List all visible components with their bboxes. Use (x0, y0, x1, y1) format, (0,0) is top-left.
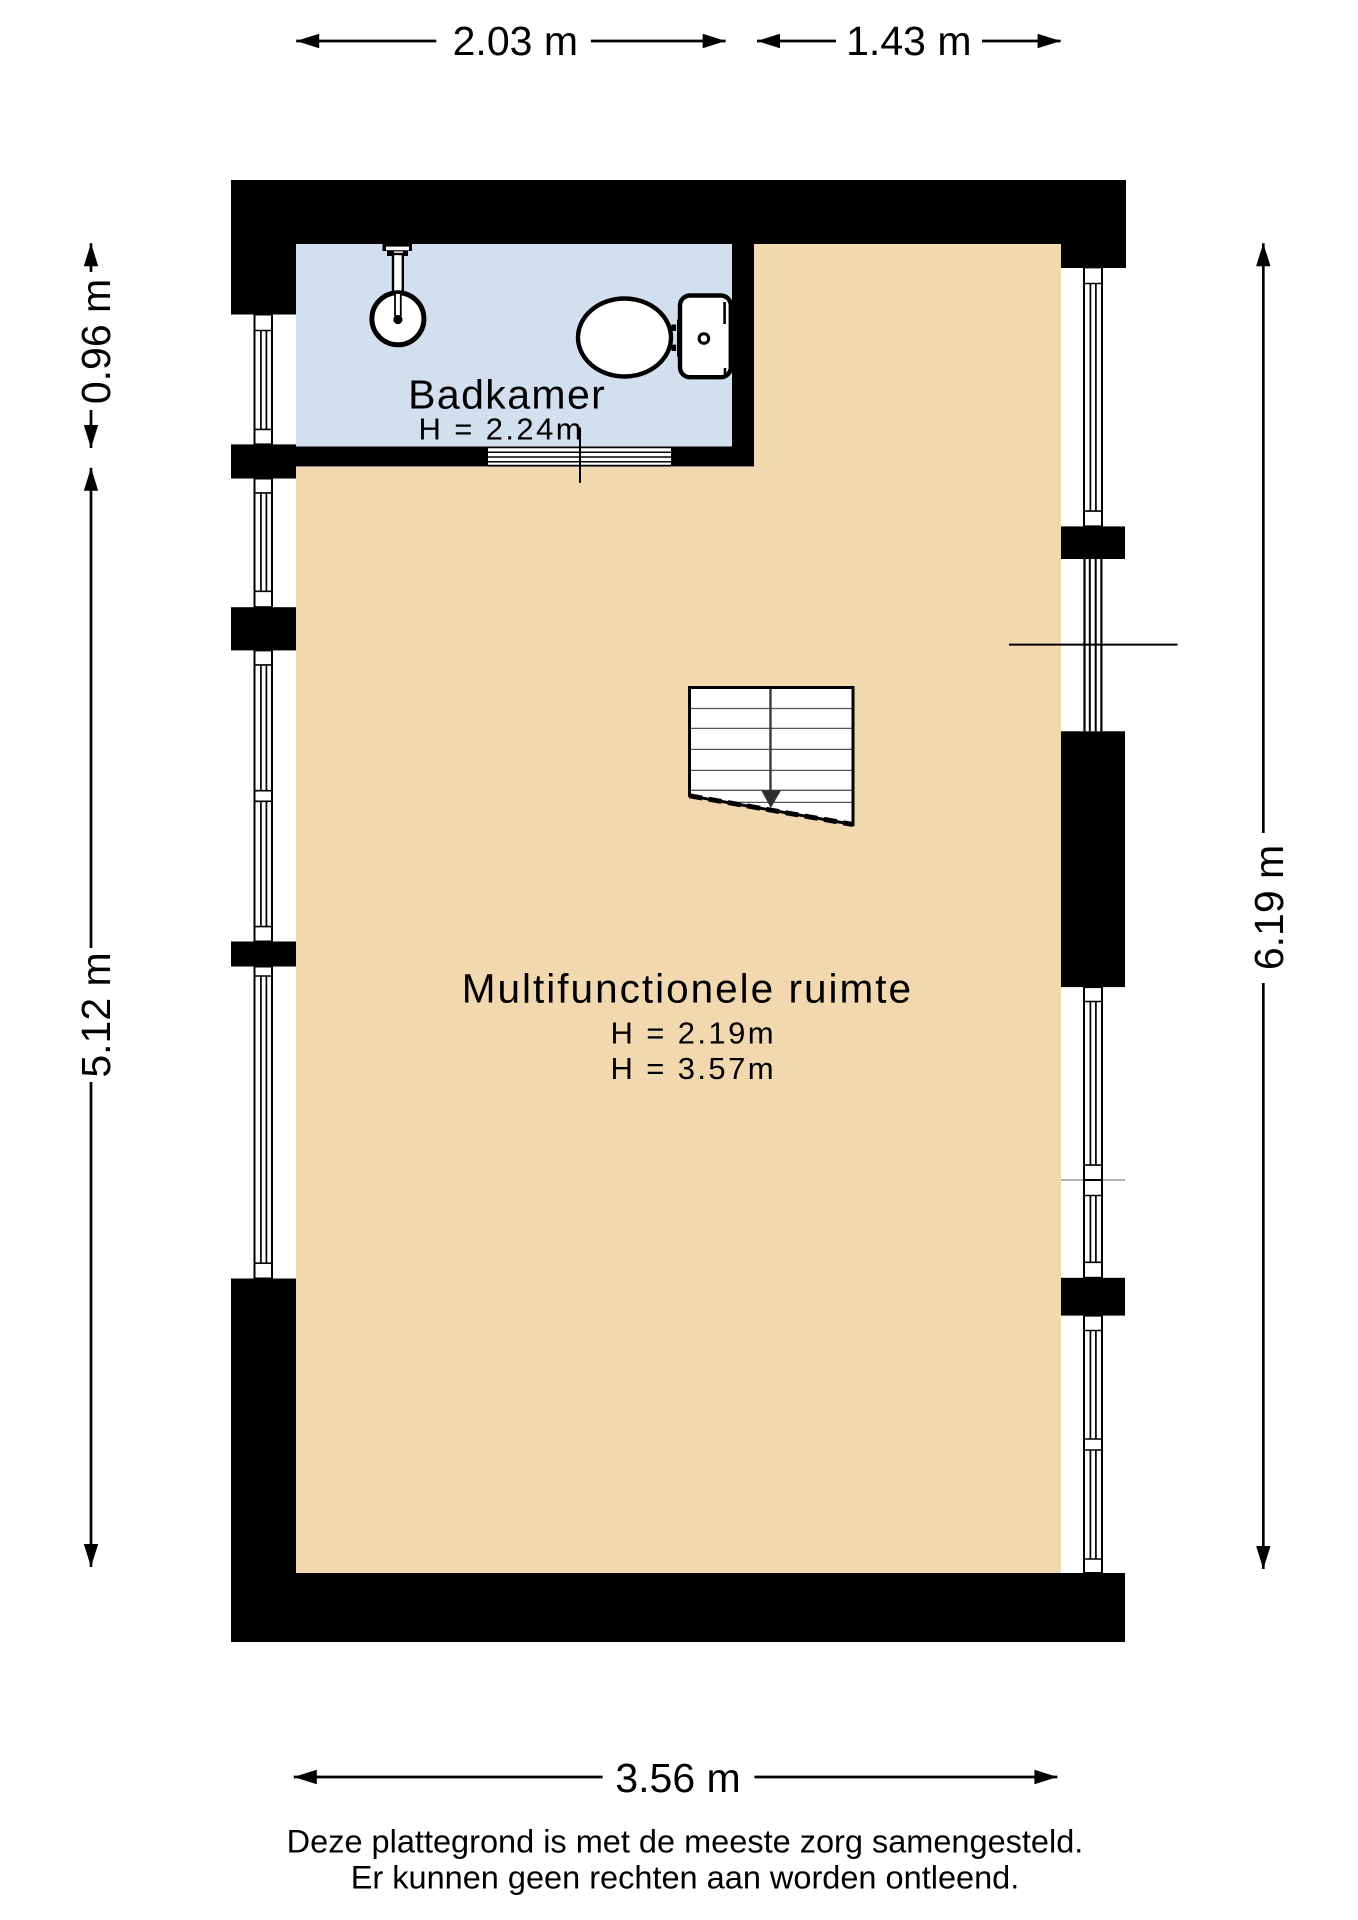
svg-text:Multifunctionele ruimte: Multifunctionele ruimte (462, 966, 913, 1012)
svg-text:H = 2.24m: H = 2.24m (418, 412, 583, 447)
svg-text:H = 3.57m: H = 3.57m (610, 1051, 775, 1086)
svg-text:5.12 m: 5.12 m (73, 952, 119, 1077)
svg-text:Deze plattegrond is met de mee: Deze plattegrond is met de meeste zorg s… (287, 1824, 1084, 1860)
svg-text:2.03 m: 2.03 m (453, 18, 578, 64)
svg-text:6.19 m: 6.19 m (1246, 845, 1292, 970)
svg-text:Er kunnen geen rechten aan wor: Er kunnen geen rechten aan worden ontlee… (351, 1860, 1020, 1896)
svg-text:Badkamer: Badkamer (408, 372, 606, 418)
svg-text:1.43 m: 1.43 m (846, 18, 971, 64)
svg-text:0.96 m: 0.96 m (73, 279, 119, 404)
svg-text:3.56 m: 3.56 m (615, 1755, 740, 1801)
svg-text:H = 2.19m: H = 2.19m (610, 1016, 775, 1051)
